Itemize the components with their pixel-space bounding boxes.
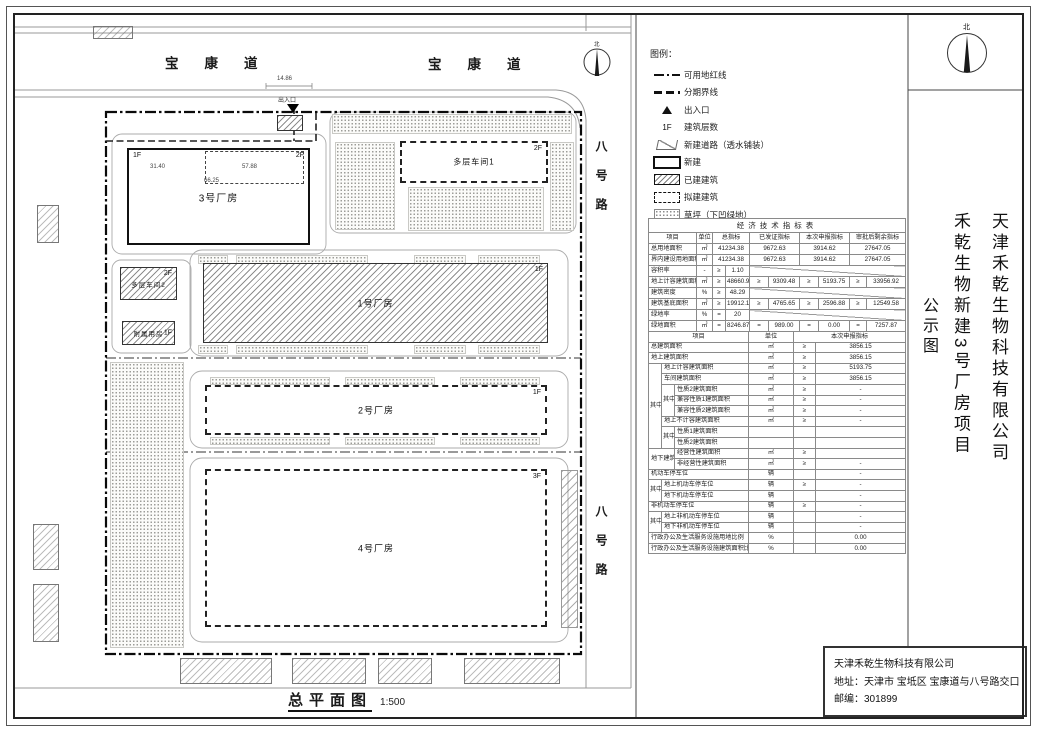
drawing-sheet: 3号厂房1F2F多层车间12F多层车间22F附属用房1F1号厂房1F2号厂房1F… bbox=[0, 0, 1037, 732]
sheet-frame-inner bbox=[13, 13, 1024, 719]
